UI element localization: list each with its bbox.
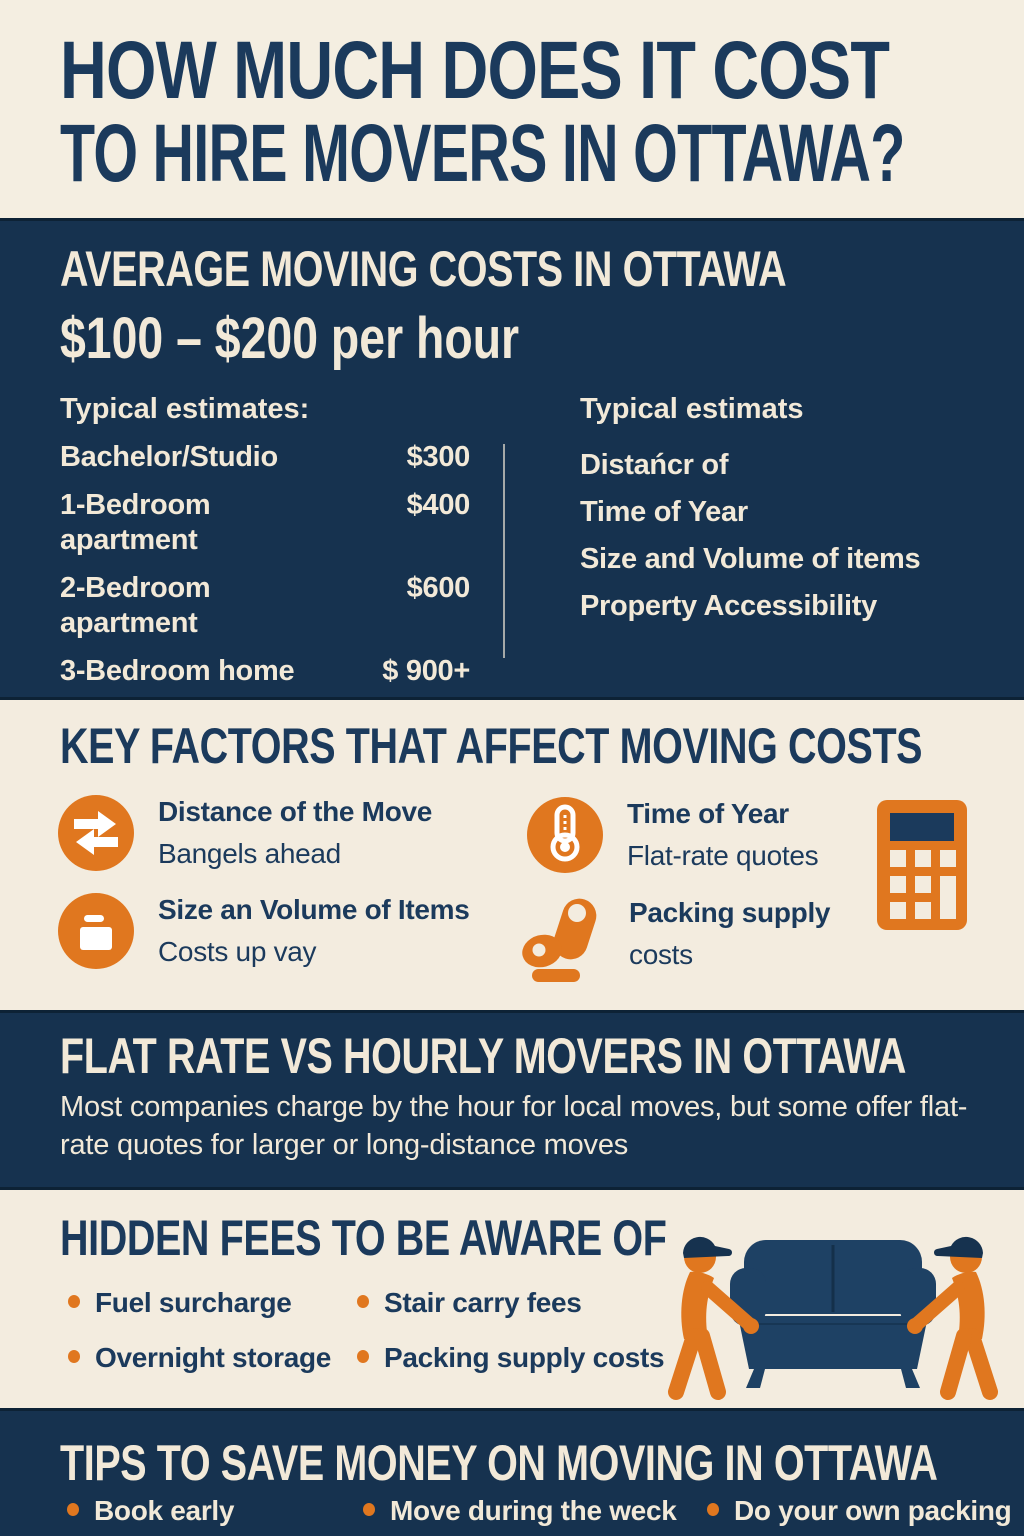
- cost-factors-heading: Typical estimats: [580, 393, 804, 426]
- flat-rate-section: FLAT RATE VS HOURLY MOVERS IN OTTAWA Mos…: [0, 1010, 1024, 1190]
- hidden-fees-section: HIDDEN FEES TO BE AWARE OF Fuel surcharg…: [0, 1190, 1024, 1408]
- factor-packing-supply: Packing supply costs: [520, 896, 830, 984]
- flat-rate-body: Most companies charge by the hour for lo…: [60, 1088, 970, 1164]
- estimate-label: 1-Bedroom apartment: [60, 488, 352, 558]
- estimate-label: 2-Bedroom apartment: [60, 571, 352, 641]
- factor-time-of-year: Time of Year Flat-rate quotes: [527, 797, 818, 873]
- tip-label: Do your own packing: [734, 1494, 1011, 1528]
- hidden-fee-label: Packing supply costs: [384, 1341, 664, 1375]
- moving-box-icon: [58, 893, 134, 969]
- factor-title: Packing supply: [629, 896, 830, 930]
- bullet-dot-icon: [707, 1503, 719, 1516]
- hidden-fee-item: Packing supply costs: [357, 1341, 664, 1375]
- factor-title: Size an Volume of Items: [158, 893, 470, 927]
- mover-left: [676, 1237, 732, 1392]
- factor-title: Time of Year: [627, 797, 818, 831]
- bullet-dot-icon: [68, 1295, 80, 1308]
- factor-title: Distance of the Move: [158, 795, 432, 829]
- estimate-price: $300: [352, 440, 470, 475]
- estimates-heading: Typical estimates:: [60, 393, 309, 426]
- estimate-row: Bachelor/Studio $300: [60, 440, 470, 475]
- cost-factor: Property Accessibility: [580, 589, 920, 623]
- cost-factor: Time of Year: [580, 495, 920, 529]
- estimate-row: 1-Bedroom apartment $400: [60, 488, 470, 558]
- hidden-fee-item: Fuel surcharge: [68, 1286, 292, 1320]
- packing-tape-icon: [520, 896, 605, 984]
- hidden-fee-item: Overnight storage: [68, 1341, 331, 1375]
- estimate-row: 2-Bedroom apartment $600: [60, 571, 470, 641]
- hourly-rate: $100 – $200 per hour: [60, 306, 519, 373]
- estimate-price: $400: [352, 488, 470, 558]
- title-section: HOW MUCH DOES IT COST TO HIRE MOVERS IN …: [0, 0, 1024, 218]
- cost-factors-list: Distańcr of Time of Year Size and Volume…: [580, 448, 920, 636]
- bullet-dot-icon: [68, 1350, 80, 1363]
- factor-subtitle: Costs up vay: [158, 935, 470, 969]
- bullet-dot-icon: [357, 1295, 369, 1308]
- hidden-fee-label: Overnight storage: [95, 1341, 331, 1375]
- factor-size-volume: Size an Volume of Items Costs up vay: [58, 893, 470, 969]
- key-factors-section: KEY FACTORS THAT AFFECT MOVING COSTS Dis…: [0, 700, 1024, 1010]
- factor-subtitle: Bangels ahead: [158, 837, 432, 871]
- tips-section: TIPS TO SAVE MONEY ON MOVING IN OTTAWA B…: [0, 1408, 1024, 1536]
- column-divider: [503, 444, 505, 658]
- estimate-row: 3-Bedroom home $ 900+: [60, 654, 470, 689]
- flat-rate-heading: FLAT RATE VS HOURLY MOVERS IN OTTAWA: [60, 1031, 906, 1081]
- estimate-price: $600: [352, 571, 470, 641]
- mover-right: [934, 1237, 990, 1392]
- tip-label: Book early: [94, 1494, 234, 1528]
- hidden-fee-item: Stair carry fees: [357, 1286, 582, 1320]
- transfer-arrows-icon: [58, 795, 134, 871]
- tip-item: Book early: [67, 1494, 234, 1528]
- bullet-dot-icon: [363, 1503, 375, 1516]
- title-line-2: TO HIRE MOVERS IN OTTAWA?: [60, 113, 905, 195]
- cost-factor: Size and Volume of items: [580, 542, 920, 576]
- estimate-price: $ 900+: [352, 654, 470, 689]
- key-factors-heading: KEY FACTORS THAT AFFECT MOVING COSTS: [60, 721, 922, 771]
- thermometer-icon: [527, 797, 603, 873]
- hidden-fees-heading: HIDDEN FEES TO BE AWARE OF: [60, 1213, 666, 1263]
- title-line-1: HOW MUCH DOES IT COST: [60, 30, 889, 112]
- estimate-label: 3-Bedroom home: [60, 654, 352, 689]
- couch: [730, 1240, 936, 1388]
- hidden-fee-label: Stair carry fees: [384, 1286, 582, 1320]
- tips-heading: TIPS TO SAVE MONEY ON MOVING IN OTTAWA: [60, 1438, 937, 1488]
- calculator-icon: [877, 800, 967, 930]
- tip-item: Do your own packing: [707, 1494, 1011, 1528]
- factor-distance: Distance of the Move Bangels ahead: [58, 795, 432, 871]
- factor-subtitle: costs: [629, 938, 830, 972]
- average-costs-section: AVERAGE MOVING COSTS IN OTTAWA $100 – $2…: [0, 218, 1024, 700]
- factor-subtitle: Flat-rate quotes: [627, 839, 818, 873]
- tip-item: Move during the weck: [363, 1494, 677, 1528]
- tip-label: Move during the weck: [390, 1494, 677, 1528]
- bullet-dot-icon: [67, 1503, 79, 1516]
- average-costs-heading: AVERAGE MOVING COSTS IN OTTAWA: [60, 244, 786, 294]
- hidden-fee-label: Fuel surcharge: [95, 1286, 292, 1320]
- cost-factor: Distańcr of: [580, 448, 920, 482]
- moving-costs-infographic: HOW MUCH DOES IT COST TO HIRE MOVERS IN …: [0, 0, 1024, 1536]
- bullet-dot-icon: [357, 1350, 369, 1363]
- movers-carrying-couch-illustration: [648, 1212, 1018, 1405]
- estimate-label: Bachelor/Studio: [60, 440, 352, 475]
